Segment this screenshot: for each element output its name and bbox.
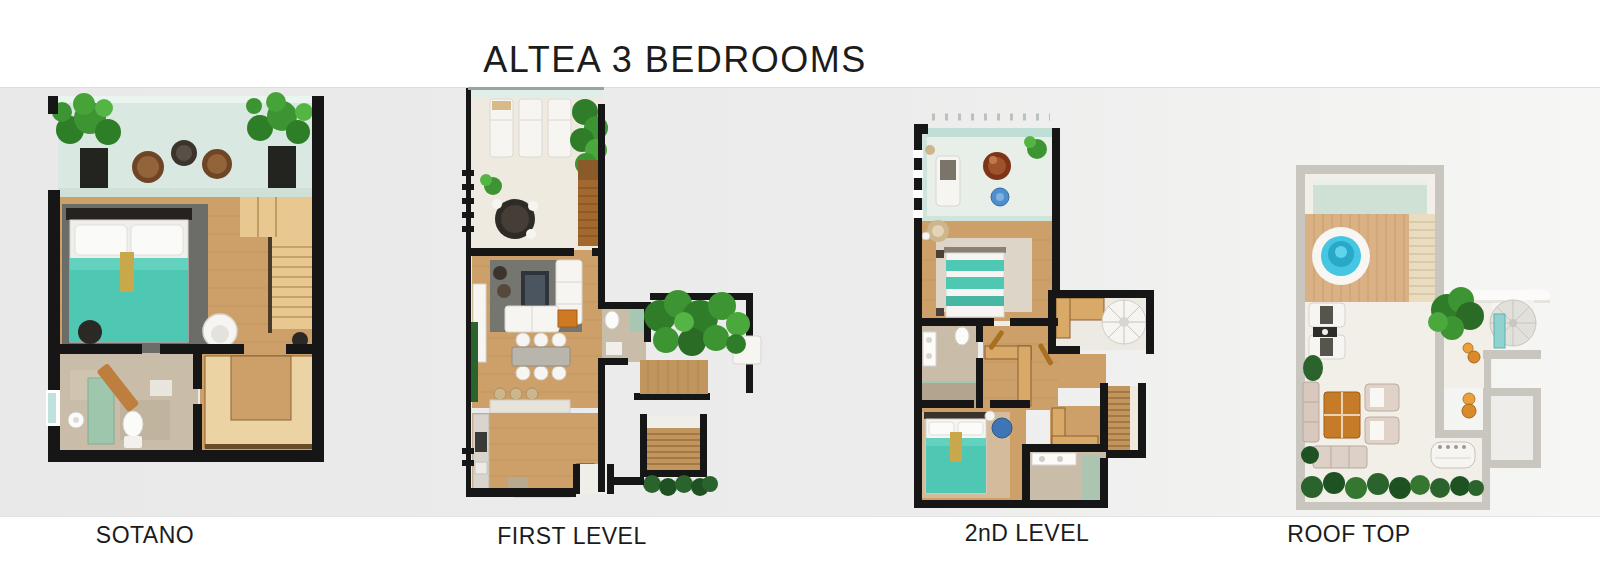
staircase [640, 414, 707, 477]
spiral-staircase-icon [1102, 300, 1146, 344]
glass-railing [468, 87, 604, 90]
staircase [578, 160, 598, 246]
wing-upper [1048, 290, 1154, 354]
bed-icon [944, 247, 1006, 317]
grill-icon [1431, 442, 1475, 468]
ottoman [78, 320, 102, 344]
lantern-icon [1468, 351, 1480, 363]
toilet-icon [955, 327, 969, 345]
floorplan-second-level-drawing [895, 105, 1155, 510]
plant-icon [1301, 446, 1319, 464]
bedroom-1 [922, 220, 1054, 321]
toilet-icon [605, 311, 619, 329]
floorplan-second-level [895, 105, 1155, 510]
plant-icon [1303, 355, 1323, 381]
bed-icon [924, 412, 988, 493]
bathroom-2 [1028, 452, 1106, 502]
kitchen-counter [490, 400, 570, 413]
stove-icon [475, 432, 487, 452]
page-title: ALTEA 3 BEDROOMS [483, 39, 866, 81]
walk-in-closet [200, 353, 320, 452]
bathroom-1 [922, 326, 978, 408]
blue-chair [992, 418, 1012, 438]
floorplan-roof-top-drawing [1285, 160, 1550, 512]
sun-loungers [490, 99, 571, 157]
glass-panel [1494, 314, 1505, 348]
lantern-icon [1462, 404, 1476, 418]
jacuzzi-deck [1305, 214, 1409, 302]
caption-first-level: FIRST LEVEL [497, 523, 647, 550]
staircase [1409, 214, 1435, 302]
guest-bathroom [602, 308, 646, 362]
glass-deck [1313, 180, 1427, 214]
living-room [471, 250, 602, 413]
caption-second-level: 2nD LEVEL [965, 520, 1090, 547]
side-table [558, 310, 577, 327]
closet [1018, 346, 1031, 406]
floorplan-sotano-drawing [35, 85, 335, 465]
toilet-icon [123, 411, 143, 437]
lantern-icon [1463, 393, 1475, 405]
staircase [1100, 383, 1146, 458]
terrace [922, 128, 1054, 221]
dining-table [512, 333, 570, 380]
hedge [471, 322, 478, 402]
floorplan-roof-top [1285, 160, 1550, 512]
floorplan-first-level [450, 85, 770, 500]
floorplan-sotano [35, 85, 335, 465]
bathroom [58, 353, 198, 455]
floorplan-first-level-drawing [450, 85, 770, 500]
floorplan-sheet: ALTEA 3 BEDROOMS [0, 0, 1600, 563]
armchair [203, 314, 237, 348]
closet-2 [1050, 406, 1100, 450]
sink-icon [475, 462, 487, 474]
window [46, 390, 60, 426]
hedge [643, 475, 718, 496]
caption-sotano: SOTANO [96, 522, 194, 549]
bedroom-2 [922, 408, 1026, 502]
caption-roof-top: ROOF TOP [1287, 521, 1410, 548]
